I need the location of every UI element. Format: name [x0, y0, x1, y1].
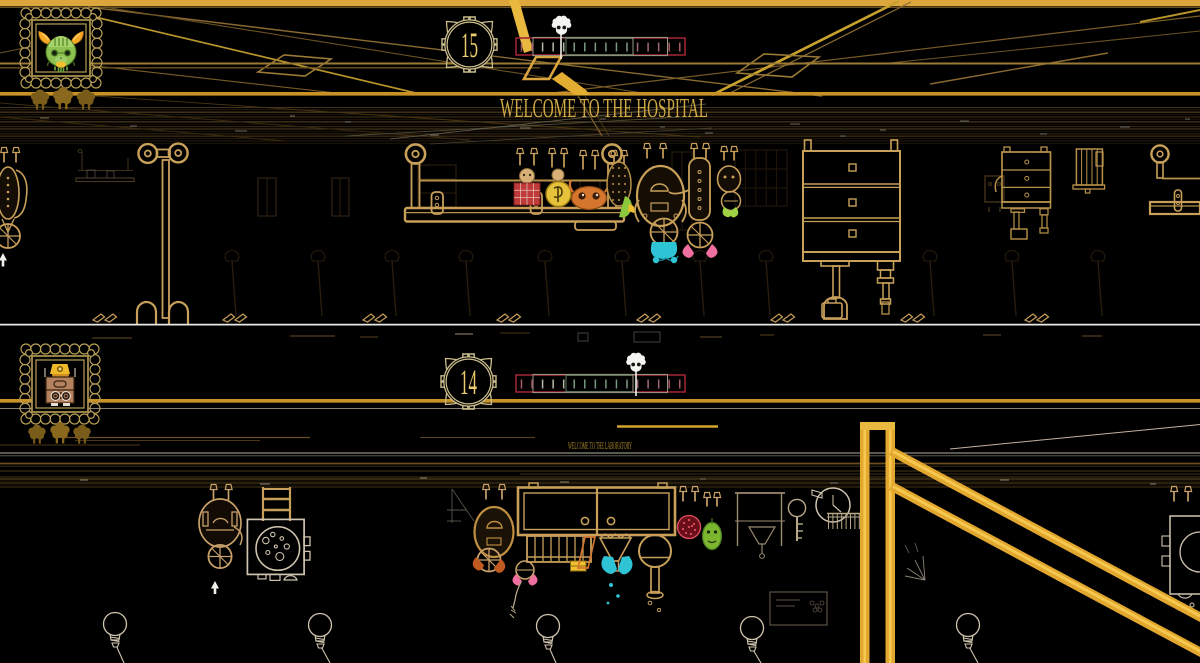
svg-text:WELCOME TO THE HOSPITAL: WELCOME TO THE HOSPITAL [500, 93, 708, 123]
svg-text:15: 15 [461, 25, 478, 65]
svg-text:14: 14 [460, 362, 477, 402]
svg-text:WELCOME TO THE LABORATORY: WELCOME TO THE LABORATORY [568, 440, 632, 452]
